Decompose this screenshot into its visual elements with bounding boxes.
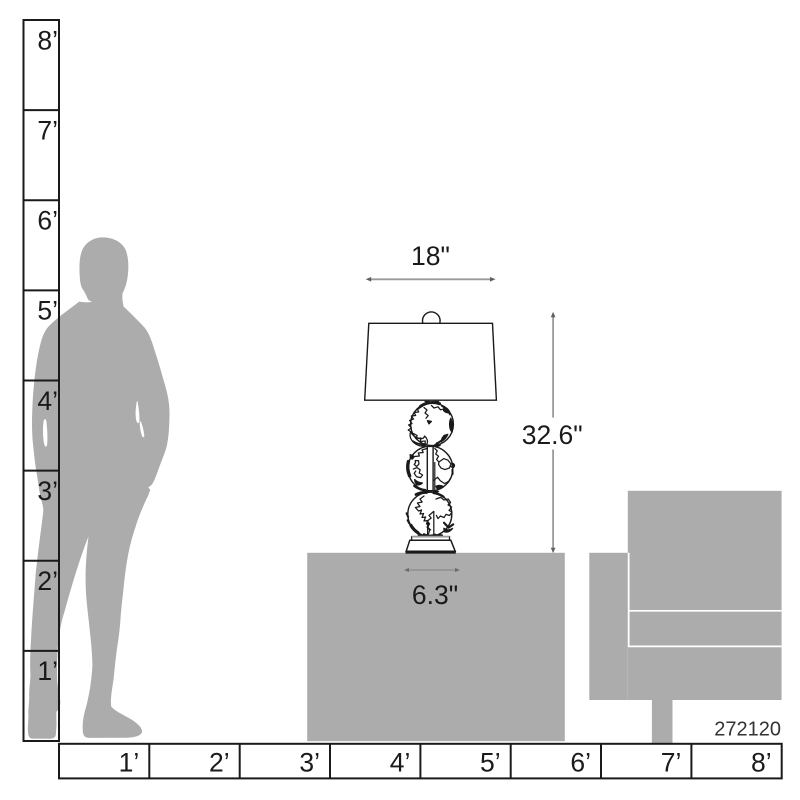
svg-text:5’: 5’ xyxy=(480,748,501,778)
svg-text:18": 18" xyxy=(411,241,450,271)
svg-text:2’: 2’ xyxy=(37,566,58,596)
svg-text:2’: 2’ xyxy=(209,748,230,778)
svg-text:7’: 7’ xyxy=(661,748,682,778)
svg-text:272120: 272120 xyxy=(714,719,781,741)
svg-text:4’: 4’ xyxy=(37,386,58,416)
svg-text:6’: 6’ xyxy=(37,206,58,236)
svg-text:4’: 4’ xyxy=(390,748,411,778)
svg-text:1’: 1’ xyxy=(119,748,140,778)
svg-text:32.6": 32.6" xyxy=(522,420,583,450)
svg-text:8’: 8’ xyxy=(751,748,772,778)
svg-text:1’: 1’ xyxy=(37,656,58,686)
svg-text:3’: 3’ xyxy=(37,476,58,506)
svg-text:8’: 8’ xyxy=(37,25,58,55)
svg-text:5’: 5’ xyxy=(37,296,58,326)
svg-text:6.3": 6.3" xyxy=(412,580,458,610)
svg-text:6’: 6’ xyxy=(570,748,591,778)
svg-text:3’: 3’ xyxy=(299,748,320,778)
svg-text:7’: 7’ xyxy=(37,115,58,145)
